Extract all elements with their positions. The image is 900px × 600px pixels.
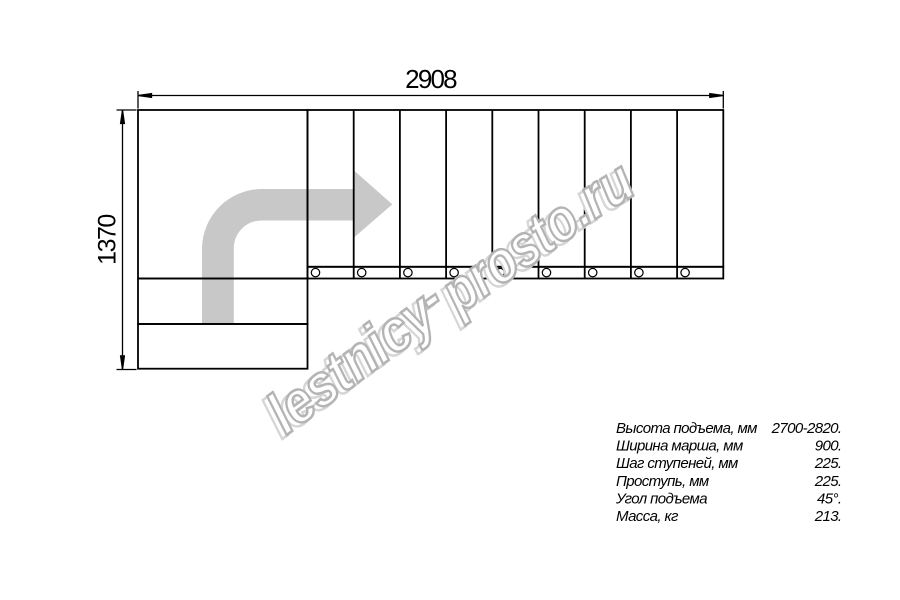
svg-text:900.: 900. [815, 438, 842, 455]
svg-text:Высота подъема, мм: Высота подъема, мм [616, 420, 757, 437]
svg-text:Шаг ступеней, мм: Шаг ступеней, мм [616, 455, 738, 472]
svg-text:213.: 213. [814, 508, 842, 525]
svg-text:45°.: 45°. [817, 490, 841, 507]
svg-text:2908: 2908 [405, 64, 457, 94]
svg-text:Проступь, мм: Проступь, мм [616, 473, 709, 490]
svg-text:2700-2820.: 2700-2820. [771, 420, 842, 437]
svg-text:1370: 1370 [94, 215, 122, 265]
svg-text:Угол подъема: Угол подъема [615, 490, 707, 507]
svg-text:Ширина марша, мм: Ширина марша, мм [616, 438, 743, 455]
svg-text:225.: 225. [814, 473, 842, 490]
svg-text:Масса, кг: Масса, кг [616, 508, 679, 525]
svg-text:225.: 225. [814, 455, 842, 472]
